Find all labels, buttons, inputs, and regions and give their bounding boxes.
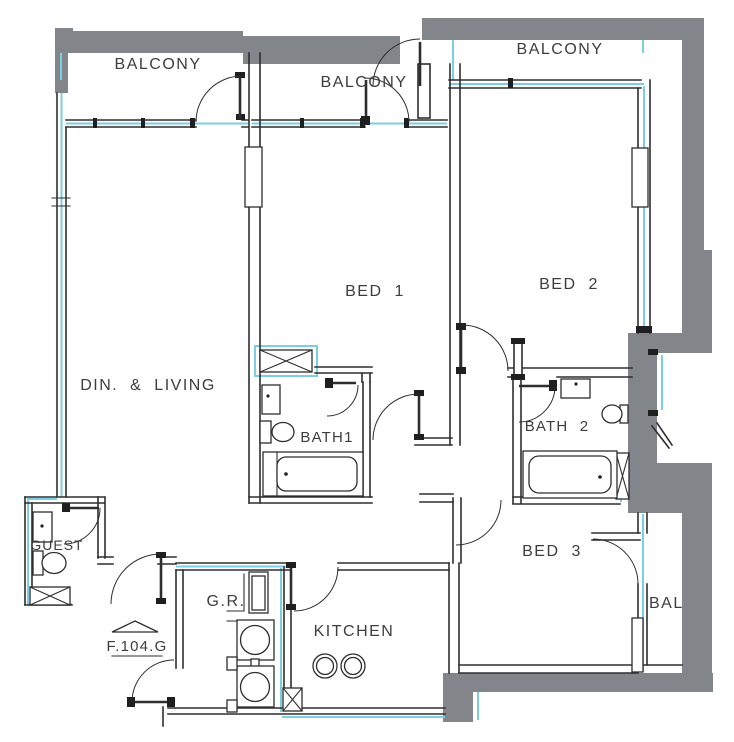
wall-kitchen-top bbox=[338, 563, 449, 570]
room-label-balcony-left: BALCONY bbox=[115, 56, 202, 73]
bathtub-bath1-inner bbox=[277, 457, 357, 491]
door-bed2 bbox=[456, 323, 508, 374]
wall-bed2-bottom bbox=[508, 368, 632, 377]
washbasin-bath2 bbox=[561, 379, 590, 398]
wall-bed2-right-cap bbox=[636, 326, 652, 333]
room-label-balcony-side: BAL bbox=[649, 595, 684, 612]
toilet-bowl-bath2 bbox=[602, 405, 622, 423]
window-bed2-right bbox=[632, 148, 648, 207]
bathtub-bath2-inner bbox=[529, 456, 611, 493]
wall-bottom bbox=[168, 708, 445, 714]
window-bed3-right bbox=[632, 618, 643, 672]
entry-triangle bbox=[112, 621, 158, 632]
room-label-balcony-middle: BALCONY bbox=[321, 74, 408, 91]
wall-bath1-right bbox=[363, 382, 370, 497]
wall-bed3-bottom bbox=[459, 665, 682, 673]
kitchen-sink bbox=[313, 654, 365, 678]
wall-bath2-stub bbox=[514, 342, 522, 378]
door-entry bbox=[127, 660, 175, 707]
wall-top-right-band bbox=[422, 18, 704, 40]
wall-bath2-stub-cap-top bbox=[511, 338, 525, 344]
toilet-bowl-guest bbox=[42, 553, 66, 574]
door-bed3-balcony bbox=[593, 539, 638, 584]
wall-right-pillar-band-b bbox=[628, 463, 712, 513]
room-label-bed2: BED 2 bbox=[539, 276, 599, 293]
door-bed3-hall bbox=[456, 500, 501, 545]
washbasin-bath1 bbox=[262, 385, 280, 414]
wall-bath1-bottom bbox=[249, 497, 372, 503]
wall-right-column-mid bbox=[682, 250, 712, 333]
shaft-bath1 bbox=[260, 350, 312, 372]
wall-foyer-left bbox=[176, 570, 183, 668]
wall-kitchen-right bbox=[449, 563, 459, 673]
bath2-fixtures bbox=[523, 379, 628, 498]
door-bath2 bbox=[519, 380, 557, 422]
door-bath1 bbox=[325, 378, 358, 416]
window-living-bed1 bbox=[245, 147, 262, 207]
room-label-bath1: BATH1 bbox=[300, 429, 353, 446]
wall-top-middle-band bbox=[243, 36, 400, 64]
wall-bath2-stub-cap-bottom bbox=[511, 374, 525, 380]
wall-bath1-step bbox=[362, 373, 370, 382]
washer-1-drum bbox=[241, 626, 270, 655]
door-kitchen bbox=[286, 562, 338, 611]
wall-bottom-right-band bbox=[443, 673, 713, 692]
wall-hall-bed3-corner bbox=[420, 494, 453, 502]
toilet-tank-bath1 bbox=[260, 421, 271, 443]
room-label-gr: G.R. bbox=[207, 593, 246, 610]
slot-cap-bottom bbox=[648, 410, 658, 416]
room-label-kitchen: KITCHEN bbox=[314, 623, 395, 640]
wall-right-column-lower bbox=[682, 513, 712, 674]
wall-bed1-bed2-divider bbox=[450, 64, 460, 445]
shaft-bath2 bbox=[616, 453, 629, 499]
wall-bed3-left-upper bbox=[453, 498, 461, 563]
fixtures bbox=[30, 350, 629, 712]
room-label-balcony-right: BALCONY bbox=[517, 41, 604, 58]
room-label-guest: GUEST bbox=[30, 537, 83, 553]
unit-number-label: F.104.G bbox=[107, 638, 168, 655]
wall-bath2-left bbox=[513, 380, 521, 503]
floor-plan-page: BALCONY BALCONY BALCONY BED 1 BED 2 BED … bbox=[0, 0, 734, 742]
room-label-dining-living: DIN. & LIVING bbox=[80, 377, 216, 394]
window-panels bbox=[245, 147, 648, 672]
slot-cap-top bbox=[648, 349, 658, 355]
wall-guest-right bbox=[98, 497, 105, 558]
door-foyer bbox=[111, 552, 166, 604]
wall-bath1-top bbox=[315, 367, 372, 373]
room-label-bed1: BED 1 bbox=[345, 283, 405, 300]
door-bed1 bbox=[373, 390, 424, 440]
wall-bottom-right-step bbox=[443, 673, 473, 722]
wall-right-pillar-left bbox=[628, 353, 657, 465]
toilet-bowl-bath1 bbox=[272, 423, 294, 442]
shaft-guest bbox=[30, 587, 70, 605]
room-label-bed3: BED 3 bbox=[522, 543, 582, 560]
wall-top-left-band bbox=[55, 31, 243, 53]
floor-plan-drawing: BALCONY BALCONY BALCONY BED 1 BED 2 BED … bbox=[0, 0, 734, 742]
room-label-bath2: BATH 2 bbox=[525, 418, 590, 435]
wall-right-column-upper bbox=[682, 40, 704, 252]
shaft-kitchen bbox=[283, 688, 302, 711]
wall-right-pillar-band-a bbox=[628, 333, 712, 353]
washer-2-drum bbox=[241, 673, 270, 702]
